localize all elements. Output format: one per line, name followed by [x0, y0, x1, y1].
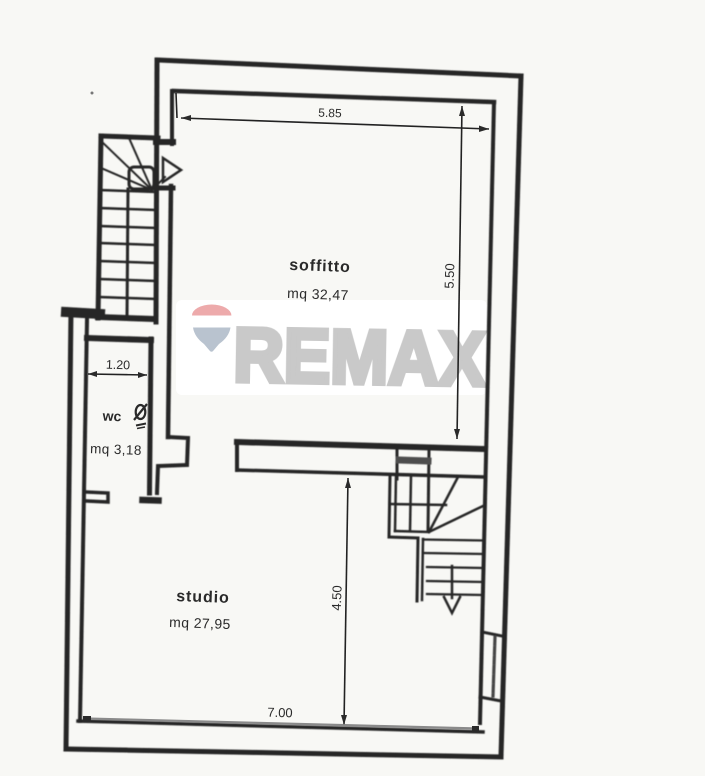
svg-text:mq 3,18: mq 3,18: [90, 441, 142, 458]
svg-text:mq 27,95: mq 27,95: [169, 614, 231, 632]
svg-text:mq 32,47: mq 32,47: [287, 285, 349, 303]
svg-text:5.85: 5.85: [318, 106, 342, 121]
svg-text:wc: wc: [101, 408, 121, 425]
svg-text:7.00: 7.00: [267, 705, 293, 721]
svg-text:REMAX: REMAX: [233, 313, 487, 402]
svg-text:4.50: 4.50: [329, 585, 345, 611]
svg-text:1.20: 1.20: [106, 358, 131, 373]
svg-text:studio: studio: [176, 588, 230, 607]
svg-text:5.50: 5.50: [442, 263, 458, 289]
svg-text:soffitto: soffitto: [289, 257, 351, 276]
